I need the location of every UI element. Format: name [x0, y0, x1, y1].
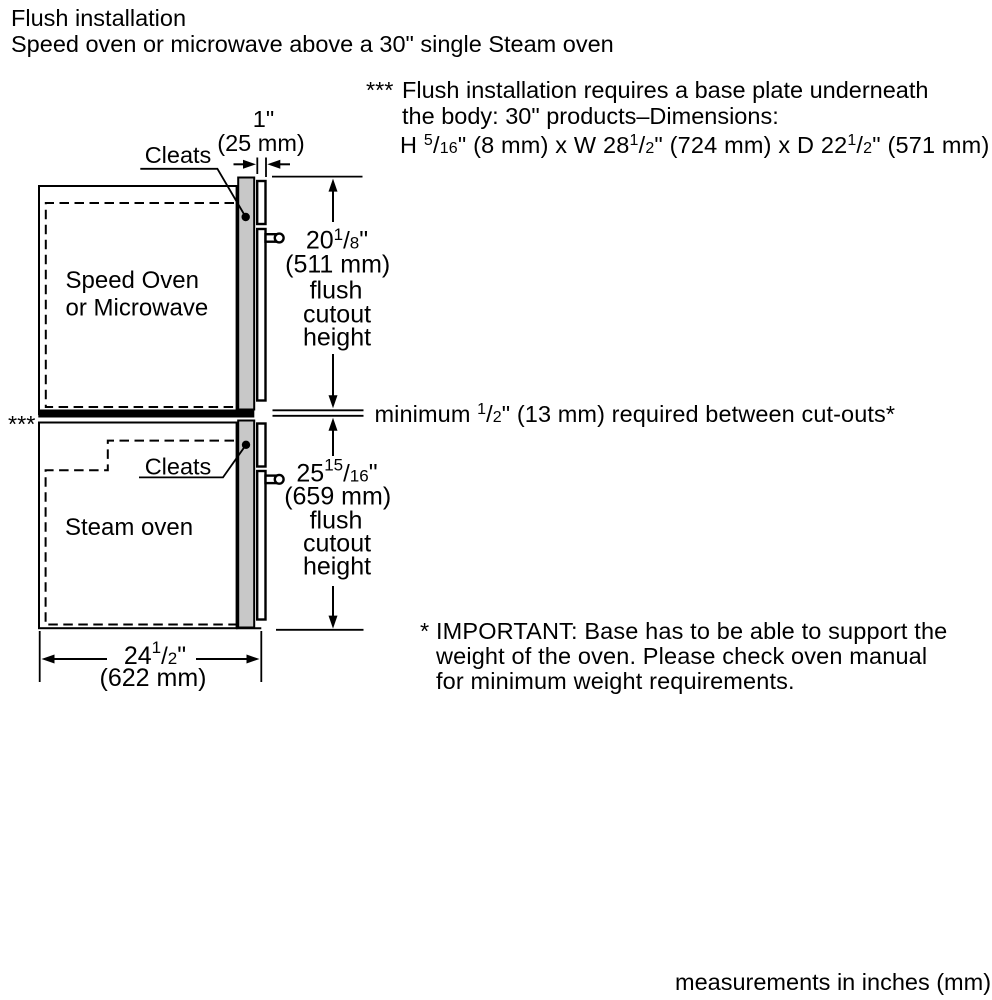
svg-text:minimum 1/2" (13 mm) required: minimum 1/2" (13 mm) required between cu… — [375, 401, 896, 427]
svg-text:*: * — [420, 618, 429, 644]
svg-text:Cleats: Cleats — [145, 454, 212, 480]
svg-text:weight of the oven. Please che: weight of the oven. Please check oven ma… — [435, 643, 927, 669]
svg-text:***: *** — [8, 411, 35, 437]
svg-text:Flush installation: Flush installation — [11, 5, 186, 31]
svg-text:or Microwave: or Microwave — [66, 295, 209, 322]
svg-text:Speed Oven: Speed Oven — [66, 267, 199, 294]
svg-text:(511 mm): (511 mm) — [285, 251, 390, 279]
svg-text:Steam oven: Steam oven — [65, 514, 193, 541]
svg-text:Speed oven or microwave above: Speed oven or microwave above a 30" sing… — [11, 31, 614, 57]
svg-text:height: height — [303, 553, 371, 581]
svg-text:1": 1" — [253, 106, 274, 132]
svg-text:IMPORTANT: Base has to be able: IMPORTANT: Base has to be able to suppor… — [436, 618, 947, 644]
svg-text:height: height — [303, 324, 371, 352]
svg-text:Flush installation requires a: Flush installation requires a base plate… — [402, 77, 928, 103]
svg-text:Cleats: Cleats — [145, 142, 212, 168]
svg-text:***: *** — [366, 77, 393, 103]
svg-text:for minimum weight requirement: for minimum weight requirements. — [436, 668, 795, 694]
svg-text:(25 mm): (25 mm) — [217, 130, 304, 156]
svg-text:(622 mm): (622 mm) — [100, 664, 207, 692]
svg-text:H 5/16" (8 mm) x W 281/2" (724: H 5/16" (8 mm) x W 281/2" (724 mm) x D 2… — [400, 132, 989, 158]
svg-text:measurements in inches (mm): measurements in inches (mm) — [675, 969, 991, 995]
svg-text:the body: 30" products–Dimensi: the body: 30" products–Dimensions: — [402, 103, 779, 129]
